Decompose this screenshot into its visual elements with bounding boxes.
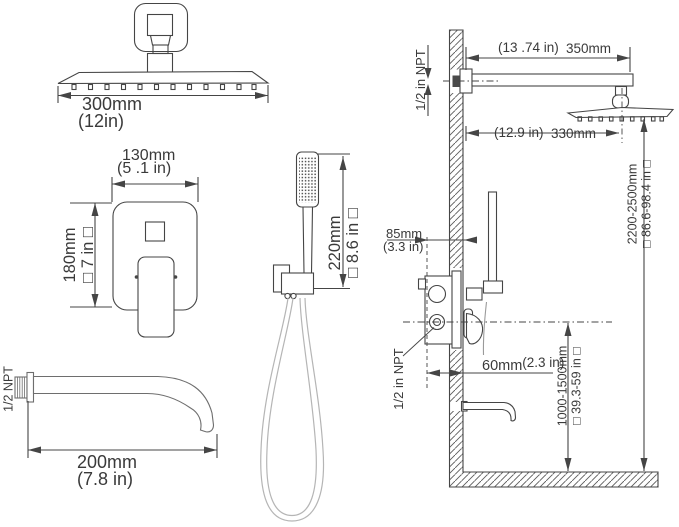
arm-length-mm-label: 350mm — [566, 42, 611, 56]
valve-height-label: 180mm □ 7 in □ — [62, 227, 98, 283]
valve-height-mm-label: 180mm — [62, 227, 80, 283]
installation-side-view — [387, 30, 673, 487]
overhead-nozzles — [72, 85, 256, 90]
spout-offset-label: 60mm (2.3 in) — [482, 359, 564, 374]
valve-height-side-in-label: □ 39.3-59 in □ — [570, 346, 584, 427]
overhead-width-in-label: (12in) — [78, 112, 124, 131]
hand-shower-height-label: 220mm □ 8.6 in □ — [327, 208, 363, 277]
hand-shower-hose — [261, 298, 324, 521]
hand-shower-height-mm-label: 220mm — [327, 208, 345, 277]
head-height-in-label: □ 86.6-98.4 in □ — [640, 160, 654, 248]
shower-system-dimension-diagram: 300mm (12in) 130mm (5 .1 in) 180mm □ 7 i… — [0, 0, 679, 527]
valve-height-side-label: 1000-1500mm □ 39.3-59 in □ — [557, 346, 584, 427]
head-height-mm-label: 2200-2500mm — [627, 160, 641, 248]
valve-height-side-mm-label: 1000-1500mm — [557, 346, 571, 427]
valve-height-in-label: □ 7 in □ — [80, 227, 98, 283]
valve-width-dimension — [112, 177, 198, 202]
overhead-shower-front-view — [58, 4, 268, 104]
head-height-label: 2200-2500mm □ 86.6-98.4 in □ — [627, 160, 654, 248]
head-offset-mm-label: 330mm — [551, 127, 596, 141]
valve-thread-label: 1/2 in NPT — [392, 348, 406, 409]
arm-thread-label: 1/2 in NPT — [414, 49, 428, 110]
tub-spout-side — [462, 402, 516, 421]
valve-width-in-label: (5 .1 in) — [117, 161, 171, 178]
tub-spout-front-view — [15, 373, 217, 459]
hand-shower-height-in-label: □ 8.6 in □ — [345, 208, 363, 277]
spout-thread-label: 1/2 NPT — [2, 366, 16, 412]
spout-length-in-label: (7.8 in) — [77, 470, 133, 489]
spout-offset-mm-label: 60mm — [482, 359, 522, 374]
head-offset-in-label: (12.9 in) — [494, 126, 544, 140]
valve-depth-in-label: (3.3 in) — [383, 240, 423, 254]
arm-length-in-label: (13 .74 in) — [498, 41, 559, 55]
spout-length-dimension — [28, 401, 217, 458]
